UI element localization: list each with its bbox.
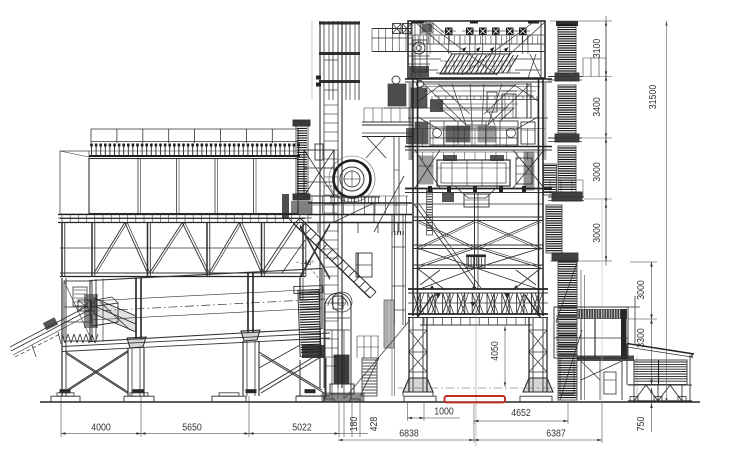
svg-text:4050: 4050 xyxy=(490,341,501,361)
svg-text:180: 180 xyxy=(349,416,360,431)
svg-text:3100: 3100 xyxy=(592,38,603,58)
svg-text:3000: 3000 xyxy=(592,223,603,243)
svg-text:3000: 3000 xyxy=(636,280,647,300)
svg-text:3400: 3400 xyxy=(592,97,603,117)
svg-text:31500: 31500 xyxy=(648,84,659,109)
svg-text:4652: 4652 xyxy=(511,408,531,419)
svg-text:6838: 6838 xyxy=(399,429,419,440)
svg-text:45°: 45° xyxy=(304,259,314,267)
svg-text:5650: 5650 xyxy=(182,423,202,434)
svg-text:750: 750 xyxy=(636,416,647,431)
svg-text:4000: 4000 xyxy=(91,423,111,434)
svg-text:5022: 5022 xyxy=(292,423,312,434)
svg-text:3000: 3000 xyxy=(592,162,603,182)
svg-text:428: 428 xyxy=(369,416,380,431)
svg-text:6387: 6387 xyxy=(546,429,566,440)
svg-text:3300: 3300 xyxy=(636,328,647,348)
svg-text:1000: 1000 xyxy=(434,407,454,418)
